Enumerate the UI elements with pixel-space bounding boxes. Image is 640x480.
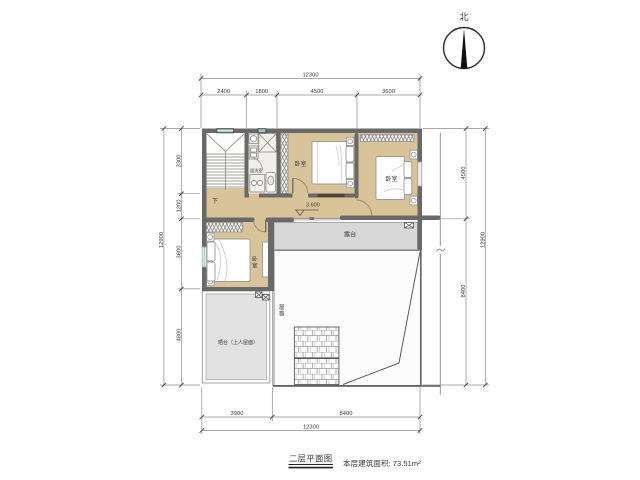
svg-text:3600: 3600	[382, 89, 395, 95]
svg-text:12300: 12300	[303, 425, 319, 431]
svg-text:3300: 3300	[177, 155, 183, 168]
svg-text:二层平面图: 二层平面图	[289, 454, 332, 464]
svg-text:卧室: 卧室	[295, 160, 307, 168]
svg-text:1200: 1200	[177, 200, 183, 213]
svg-text:盥洗室: 盥洗室	[250, 167, 263, 174]
svg-text:8400: 8400	[340, 411, 353, 417]
svg-text:晒台（上人屋面）: 晒台（上人屋面）	[218, 339, 258, 346]
svg-text:檐: 檐	[279, 310, 285, 318]
svg-text:1800: 1800	[255, 89, 268, 95]
svg-text:室: 室	[252, 262, 258, 270]
svg-text:8400: 8400	[461, 285, 467, 298]
svg-text:3600: 3600	[177, 246, 183, 259]
svg-text:4800: 4800	[177, 329, 183, 342]
svg-text:屋: 屋	[279, 304, 285, 311]
svg-text:北: 北	[459, 12, 468, 22]
svg-text:卧: 卧	[252, 255, 258, 263]
svg-text:下: 下	[212, 198, 218, 205]
svg-text:2400: 2400	[217, 89, 230, 95]
svg-text:卧室: 卧室	[386, 175, 398, 183]
svg-text:3.600: 3.600	[306, 203, 320, 209]
svg-text:本层建筑面积: 73.51m²: 本层建筑面积: 73.51m²	[343, 458, 421, 468]
svg-text:12900: 12900	[159, 232, 165, 248]
svg-text:露台: 露台	[344, 231, 356, 239]
svg-text:4500: 4500	[311, 89, 324, 95]
svg-text:4500: 4500	[461, 167, 467, 180]
svg-text:3900: 3900	[231, 411, 244, 417]
svg-text:12900: 12900	[481, 232, 487, 248]
svg-text:12300: 12300	[302, 73, 318, 79]
